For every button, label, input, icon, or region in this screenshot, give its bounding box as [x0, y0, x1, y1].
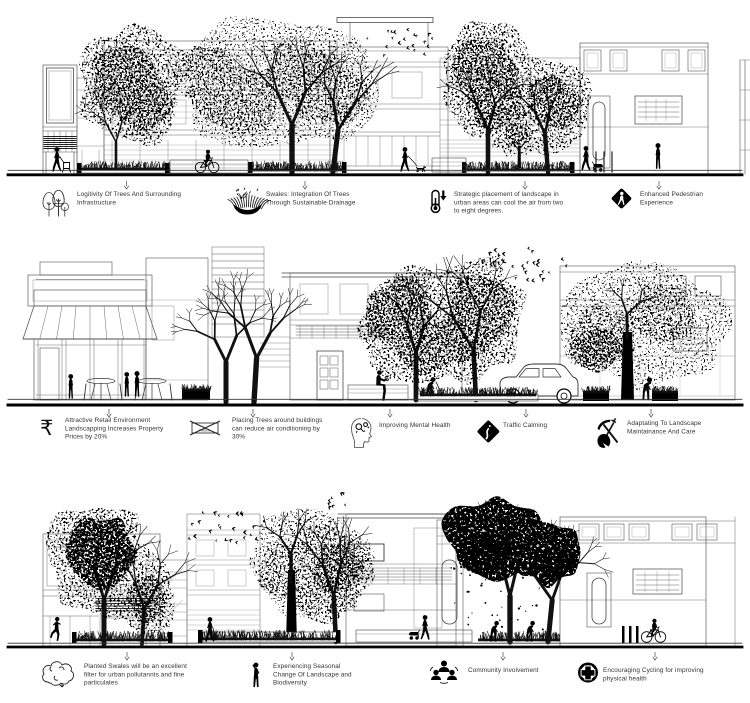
- svg-text:Adaptating To LandscapeMaintai: Adaptating To LandscapeMaintainance And …: [627, 420, 702, 435]
- svg-text:Community Involvement: Community Involvement: [468, 667, 539, 674]
- svg-text:₹: ₹: [40, 417, 53, 440]
- svg-text:Swales: Integration Of TreesTh: Swales: Integration Of TreesThrough Sust…: [266, 191, 356, 206]
- svg-text:Improving Mental Health: Improving Mental Health: [379, 422, 451, 429]
- svg-text:Traffic Calming: Traffic Calming: [503, 422, 547, 429]
- svg-text:TREES: TREES: [199, 429, 210, 433]
